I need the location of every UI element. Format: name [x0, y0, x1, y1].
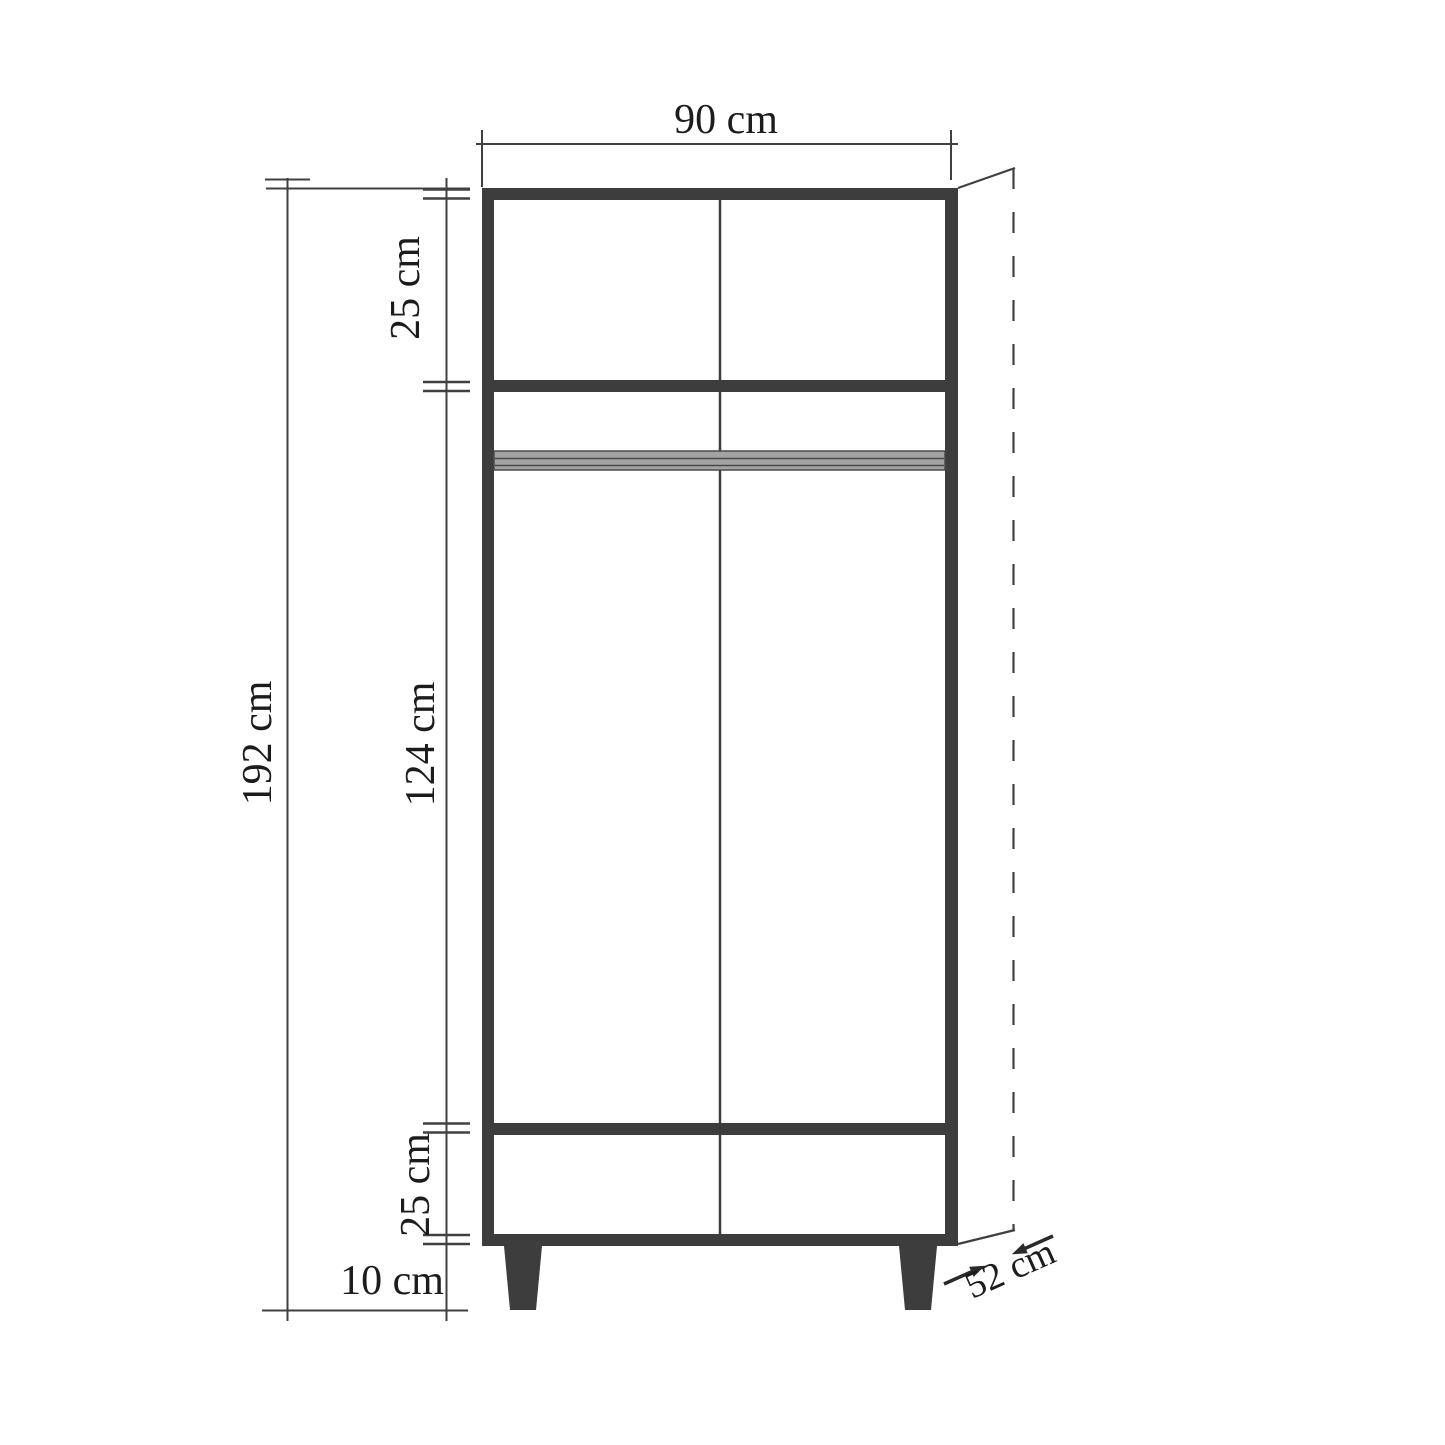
hanging-rod-bar	[494, 451, 945, 470]
total-height-dimension-label: 192 cm	[235, 680, 281, 805]
wardrobe-body	[482, 188, 958, 1310]
width-dimension-label: 90 cm	[674, 97, 778, 143]
top-section-dimension-label: 25 cm	[383, 236, 429, 340]
left-leg	[504, 1246, 542, 1310]
leg-height-dimension-label: 10 cm	[340, 1258, 444, 1304]
middle-section-dimension-label: 124 cm	[398, 681, 444, 806]
drawing-canvas: 90 cm 192 cm 25 cm 124 cm 25 cm 10 cm 52…	[0, 0, 1445, 1445]
hanging-rod	[494, 451, 945, 470]
bottom-section-dimension-label: 25 cm	[393, 1133, 439, 1237]
wardrobe-technical-drawing: 90 cm 192 cm 25 cm 124 cm 25 cm 10 cm 52…	[0, 0, 1445, 1445]
right-leg	[899, 1246, 937, 1310]
